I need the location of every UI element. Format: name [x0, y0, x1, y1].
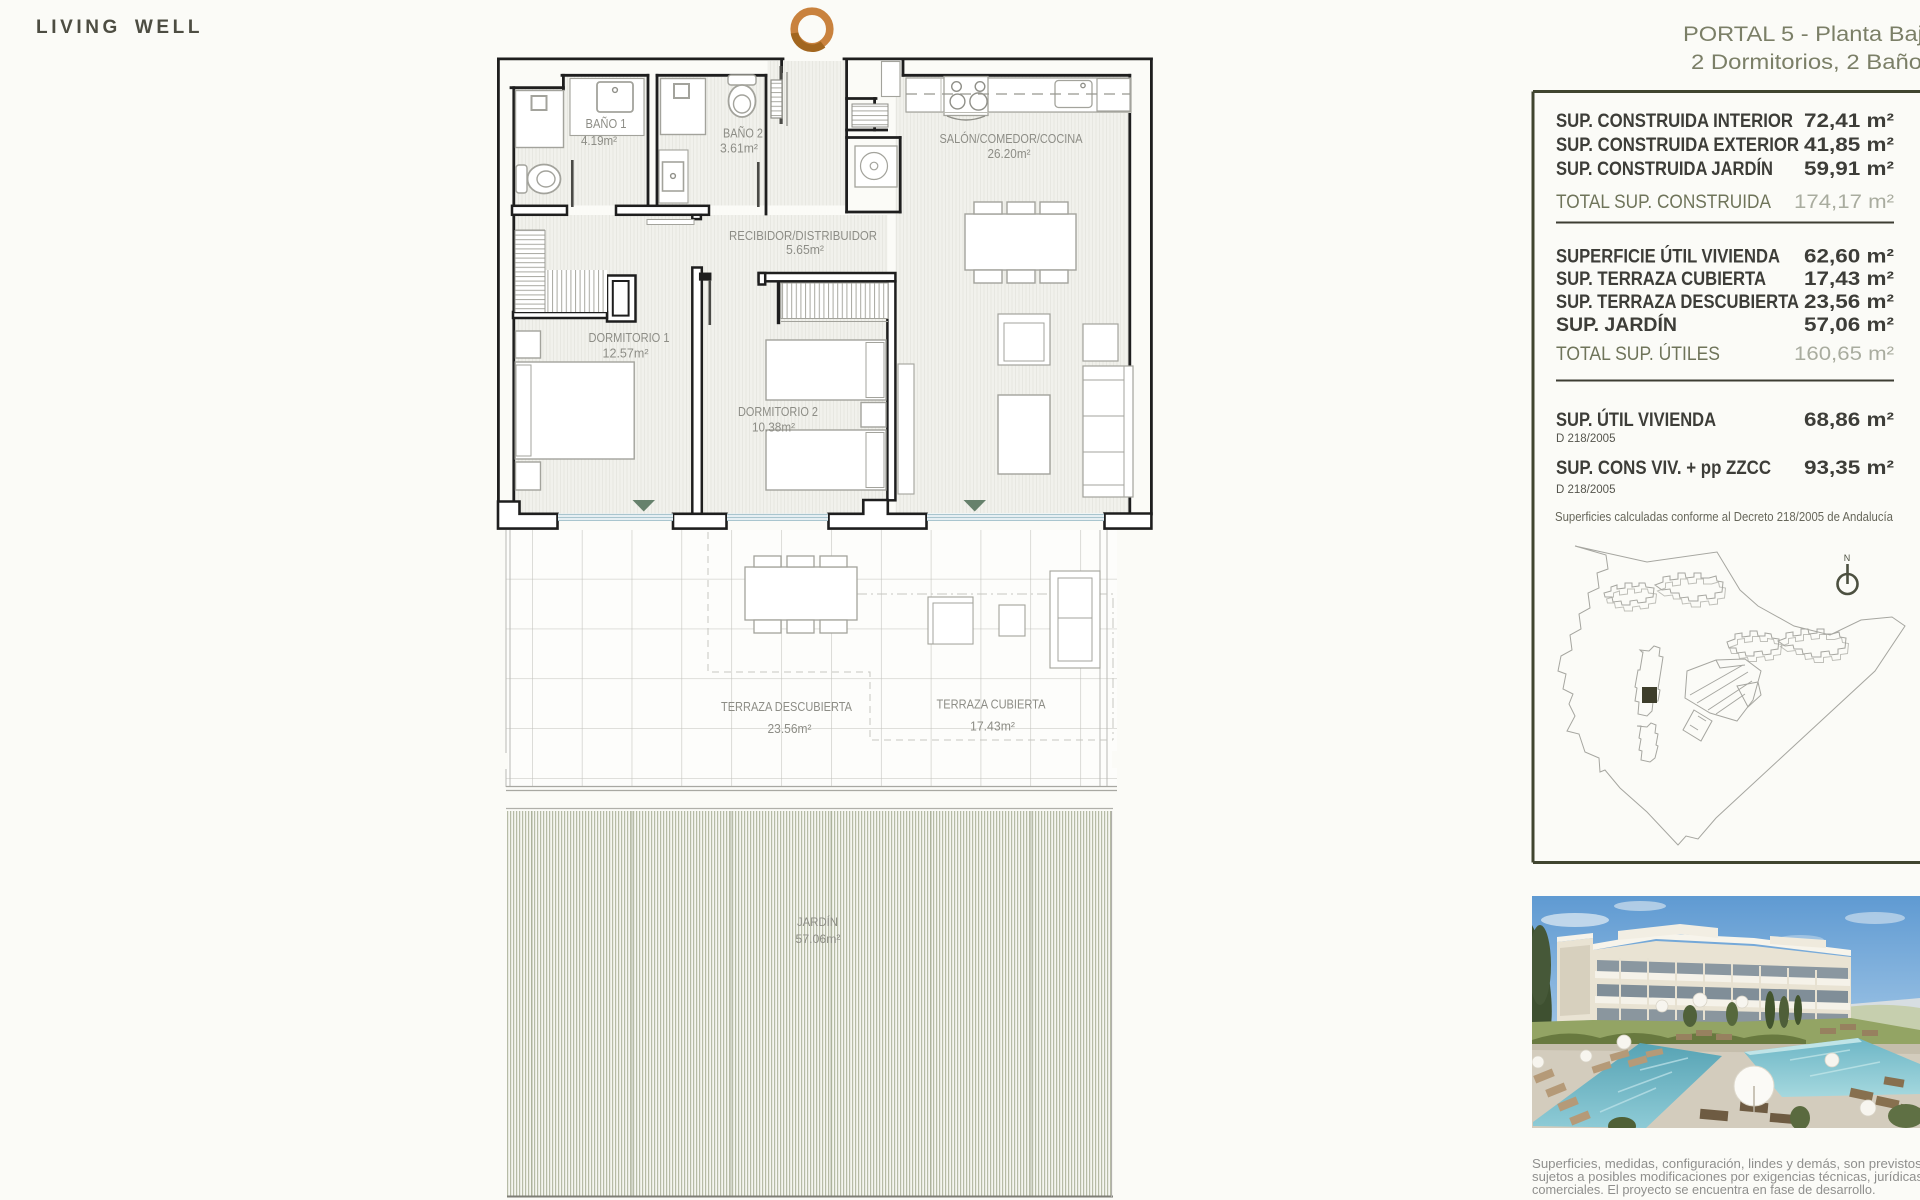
svg-text:PORTAL 5 - Planta Baja: PORTAL 5 - Planta Baja	[1683, 23, 1920, 46]
svg-text:62,60 m²: 62,60 m²	[1804, 246, 1895, 268]
svg-text:SUP. TERRAZA CUBIERTA: SUP. TERRAZA CUBIERTA	[1556, 268, 1766, 290]
svg-text:93,35 m²: 93,35 m²	[1804, 457, 1895, 479]
svg-text:5.65m²: 5.65m²	[786, 242, 825, 257]
svg-text:SUP. JARDÍN: SUP. JARDÍN	[1556, 313, 1677, 336]
svg-text:23,56 m²: 23,56 m²	[1804, 291, 1895, 313]
svg-text:TOTAL SUP. CONSTRUIDA: TOTAL SUP. CONSTRUIDA	[1556, 191, 1771, 213]
svg-text:59,91 m²: 59,91 m²	[1804, 158, 1895, 180]
svg-text:41,85 m²: 41,85 m²	[1804, 134, 1895, 156]
svg-text:3.61m²: 3.61m²	[720, 142, 758, 156]
svg-text:68,86 m²: 68,86 m²	[1804, 409, 1895, 431]
svg-text:TERRAZA CUBIERTA: TERRAZA CUBIERTA	[937, 697, 1046, 712]
svg-text:comerciales. El proyecto se en: comerciales. El proyecto se encuentra en…	[1532, 1182, 1876, 1197]
svg-text:4.19m²: 4.19m²	[581, 134, 617, 148]
svg-text:D 218/2005: D 218/2005	[1556, 484, 1615, 496]
svg-text:LIVING WELL: LIVING WELL	[36, 17, 203, 38]
svg-text:SUP. CONSTRUIDA INTERIOR: SUP. CONSTRUIDA INTERIOR	[1556, 110, 1793, 132]
svg-text:SALÓN/COMEDOR/COCINA: SALÓN/COMEDOR/COCINA	[940, 131, 1083, 146]
svg-text:TERRAZA DESCUBIERTA: TERRAZA DESCUBIERTA	[721, 699, 852, 714]
svg-text:TOTAL SUP. ÚTILES: TOTAL SUP. ÚTILES	[1556, 342, 1720, 365]
svg-text:Superficies calculadas conform: Superficies calculadas conforme al Decre…	[1555, 510, 1893, 524]
svg-text:17,43 m²: 17,43 m²	[1804, 268, 1895, 290]
svg-text:26.20m²: 26.20m²	[988, 146, 1032, 161]
svg-text:D 218/2005: D 218/2005	[1556, 433, 1615, 445]
svg-text:N: N	[1844, 553, 1851, 563]
svg-text:BAÑO 2: BAÑO 2	[723, 127, 763, 141]
svg-text:JARDÍN: JARDÍN	[797, 914, 838, 929]
svg-text:57.06m²: 57.06m²	[796, 932, 841, 946]
svg-text:SUP. CONSTRUIDA EXTERIOR: SUP. CONSTRUIDA EXTERIOR	[1556, 134, 1799, 156]
svg-text:10.38m²: 10.38m²	[752, 420, 796, 435]
svg-text:160,65 m²: 160,65 m²	[1794, 343, 1895, 365]
svg-text:SUP. TERRAZA DESCUBIERTA: SUP. TERRAZA DESCUBIERTA	[1556, 291, 1799, 313]
svg-text:SUPERFICIE ÚTIL VIVIENDA: SUPERFICIE ÚTIL VIVIENDA	[1556, 244, 1780, 268]
svg-text:17.43m²: 17.43m²	[970, 719, 1016, 734]
svg-text:SUP. CONS VIV. + pp ZZCC: SUP. CONS VIV. + pp ZZCC	[1556, 457, 1771, 479]
svg-text:SUP. CONSTRUIDA JARDÍN: SUP. CONSTRUIDA JARDÍN	[1556, 157, 1773, 180]
svg-text:23.56m²: 23.56m²	[768, 721, 813, 736]
svg-text:BAÑO 1: BAÑO 1	[586, 117, 627, 131]
svg-text:RECIBIDOR/DISTRIBUIDOR: RECIBIDOR/DISTRIBUIDOR	[729, 228, 877, 243]
svg-text:72,41 m²: 72,41 m²	[1804, 110, 1895, 132]
svg-text:57,06 m²: 57,06 m²	[1804, 314, 1895, 336]
svg-text:12.57m²: 12.57m²	[603, 346, 650, 361]
svg-text:SUP. ÚTIL VIVIENDA: SUP. ÚTIL VIVIENDA	[1556, 407, 1716, 431]
svg-text:DORMITORIO 1: DORMITORIO 1	[589, 330, 670, 345]
svg-text:2 Dormitorios, 2 Baños: 2 Dormitorios, 2 Baños	[1691, 51, 1920, 74]
svg-text:DORMITORIO 2: DORMITORIO 2	[738, 404, 818, 419]
svg-text:174,17 m²: 174,17 m²	[1794, 191, 1895, 213]
